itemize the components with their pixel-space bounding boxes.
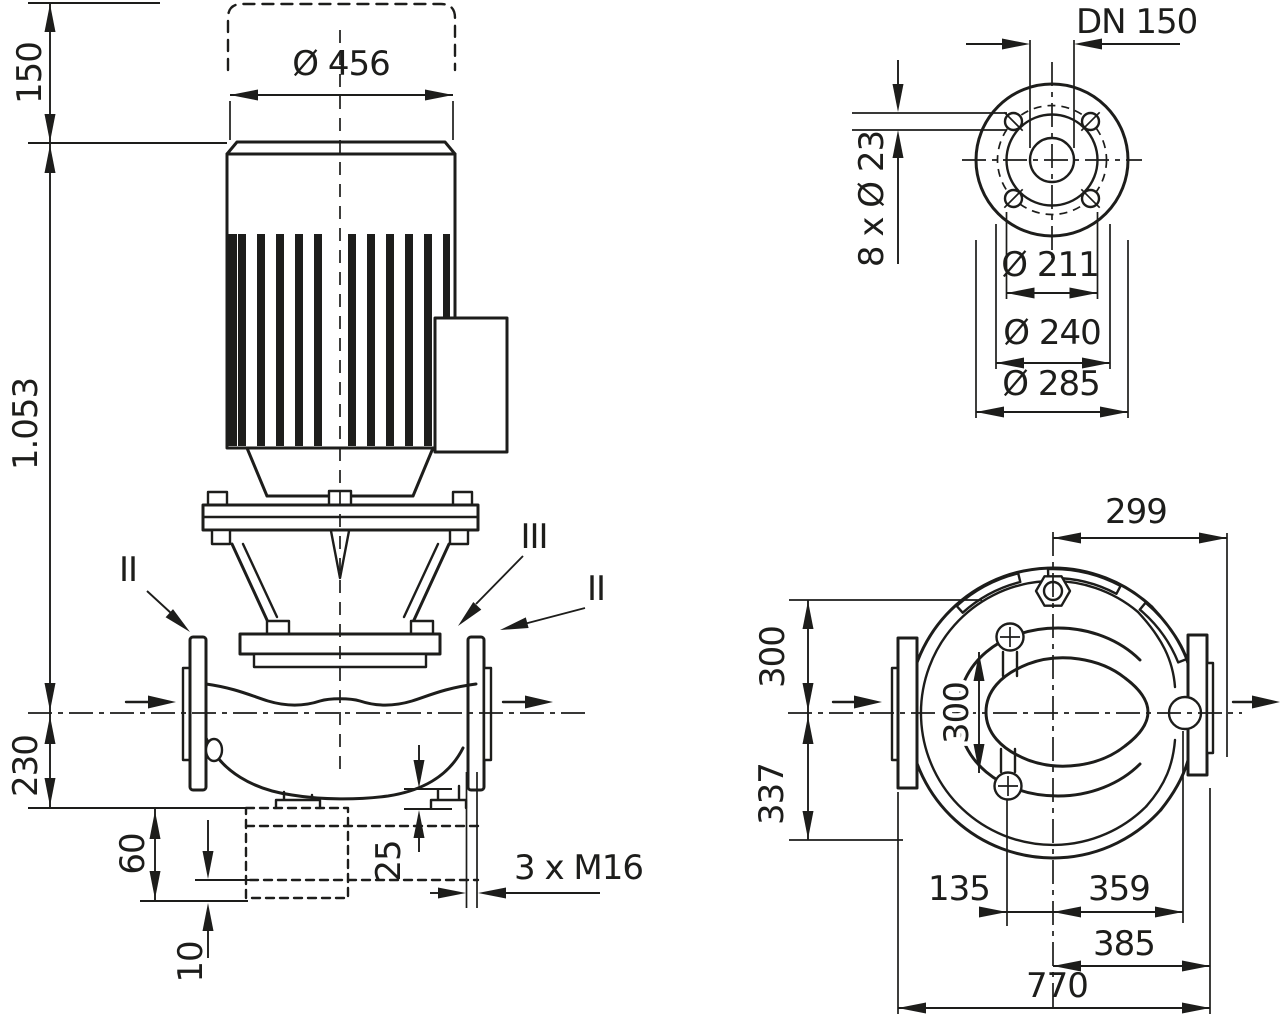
dim-drain-offset: 25 bbox=[369, 840, 409, 881]
plan-discharge-flange-outer bbox=[1207, 663, 1213, 753]
dim-bolt-holes: 8 x Ø 23 bbox=[852, 131, 892, 267]
dim-raised-face: Ø 211 bbox=[1001, 245, 1098, 285]
bolt-head-right bbox=[453, 492, 472, 505]
dim-center-to-base: 230 bbox=[6, 735, 46, 797]
plan-flow-arrow-out bbox=[1252, 696, 1280, 709]
seal-tab-right bbox=[411, 621, 433, 634]
dim-drain-thread: 3 x M16 bbox=[514, 848, 643, 888]
flange-view: DN 150 8 x Ø 23 Ø 211 Ø 240 bbox=[852, 2, 1197, 418]
dim-foundation-height: 60 bbox=[113, 833, 153, 874]
dim-bolt-circle: Ø 240 bbox=[1003, 313, 1100, 353]
nut-left bbox=[212, 530, 230, 544]
terminal-box bbox=[435, 318, 507, 452]
dim-total-height: 1.053 bbox=[6, 378, 46, 470]
bolt-head-left bbox=[208, 492, 227, 505]
flow-arrow-out bbox=[525, 696, 553, 709]
leader-arrow-right bbox=[500, 617, 529, 630]
nut-right bbox=[450, 530, 468, 544]
gauge-boss bbox=[206, 739, 222, 761]
dim-center-to-flange: 385 bbox=[1093, 924, 1155, 964]
drawing-canvas: 150 1.053 230 60 10 Ø 456 25 bbox=[0, 0, 1280, 1024]
dim-motor-diameter: Ø 456 bbox=[292, 44, 389, 84]
dimensions-plan: 299 300 337 300 135 359 bbox=[752, 492, 1227, 1014]
dim-nominal-bore: DN 150 bbox=[1076, 2, 1197, 42]
pump-dimensional-drawing: 150 1.053 230 60 10 Ø 456 25 bbox=[0, 0, 1280, 1024]
motor bbox=[227, 142, 507, 496]
dim-center-to-top: 300 bbox=[753, 626, 793, 688]
leader-arrow-mid bbox=[458, 602, 481, 626]
plan-flow-arrow-in bbox=[854, 696, 882, 709]
label-section-right: II bbox=[587, 569, 605, 609]
motor-fin-band bbox=[227, 234, 237, 446]
dim-center-to-right-edge: 299 bbox=[1105, 492, 1167, 532]
dim-outer-diameter: Ø 285 bbox=[1002, 364, 1099, 404]
suction-mouth bbox=[986, 658, 1148, 766]
front-view: 150 1.053 230 60 10 Ø 456 25 bbox=[6, 3, 643, 983]
dim-center-to-port: 359 bbox=[1088, 869, 1150, 909]
plan-view: 299 300 337 300 135 359 bbox=[752, 492, 1280, 1014]
label-section-left: II bbox=[119, 550, 137, 590]
foundation bbox=[28, 808, 478, 901]
section-labels: II III II bbox=[119, 517, 605, 632]
dimensions-flange: DN 150 8 x Ø 23 Ø 211 Ø 240 bbox=[852, 2, 1197, 418]
dim-motor-top-clearance: 150 bbox=[10, 42, 50, 104]
dim-port-spacing: 300 bbox=[937, 682, 977, 744]
foundation-dashed-outline bbox=[246, 808, 348, 898]
dim-shim-height: 10 bbox=[171, 941, 211, 982]
discharge-flange-outer-plate bbox=[484, 668, 491, 760]
casing-top-outline bbox=[206, 684, 476, 705]
dim-total-width: 770 bbox=[1026, 966, 1088, 1006]
dim-port-offset: 135 bbox=[928, 869, 990, 909]
flow-arrow-in bbox=[148, 696, 176, 709]
dim-center-to-bottom: 337 bbox=[752, 763, 792, 825]
label-section-mid: III bbox=[520, 517, 547, 557]
seal-tab-left bbox=[267, 621, 289, 634]
